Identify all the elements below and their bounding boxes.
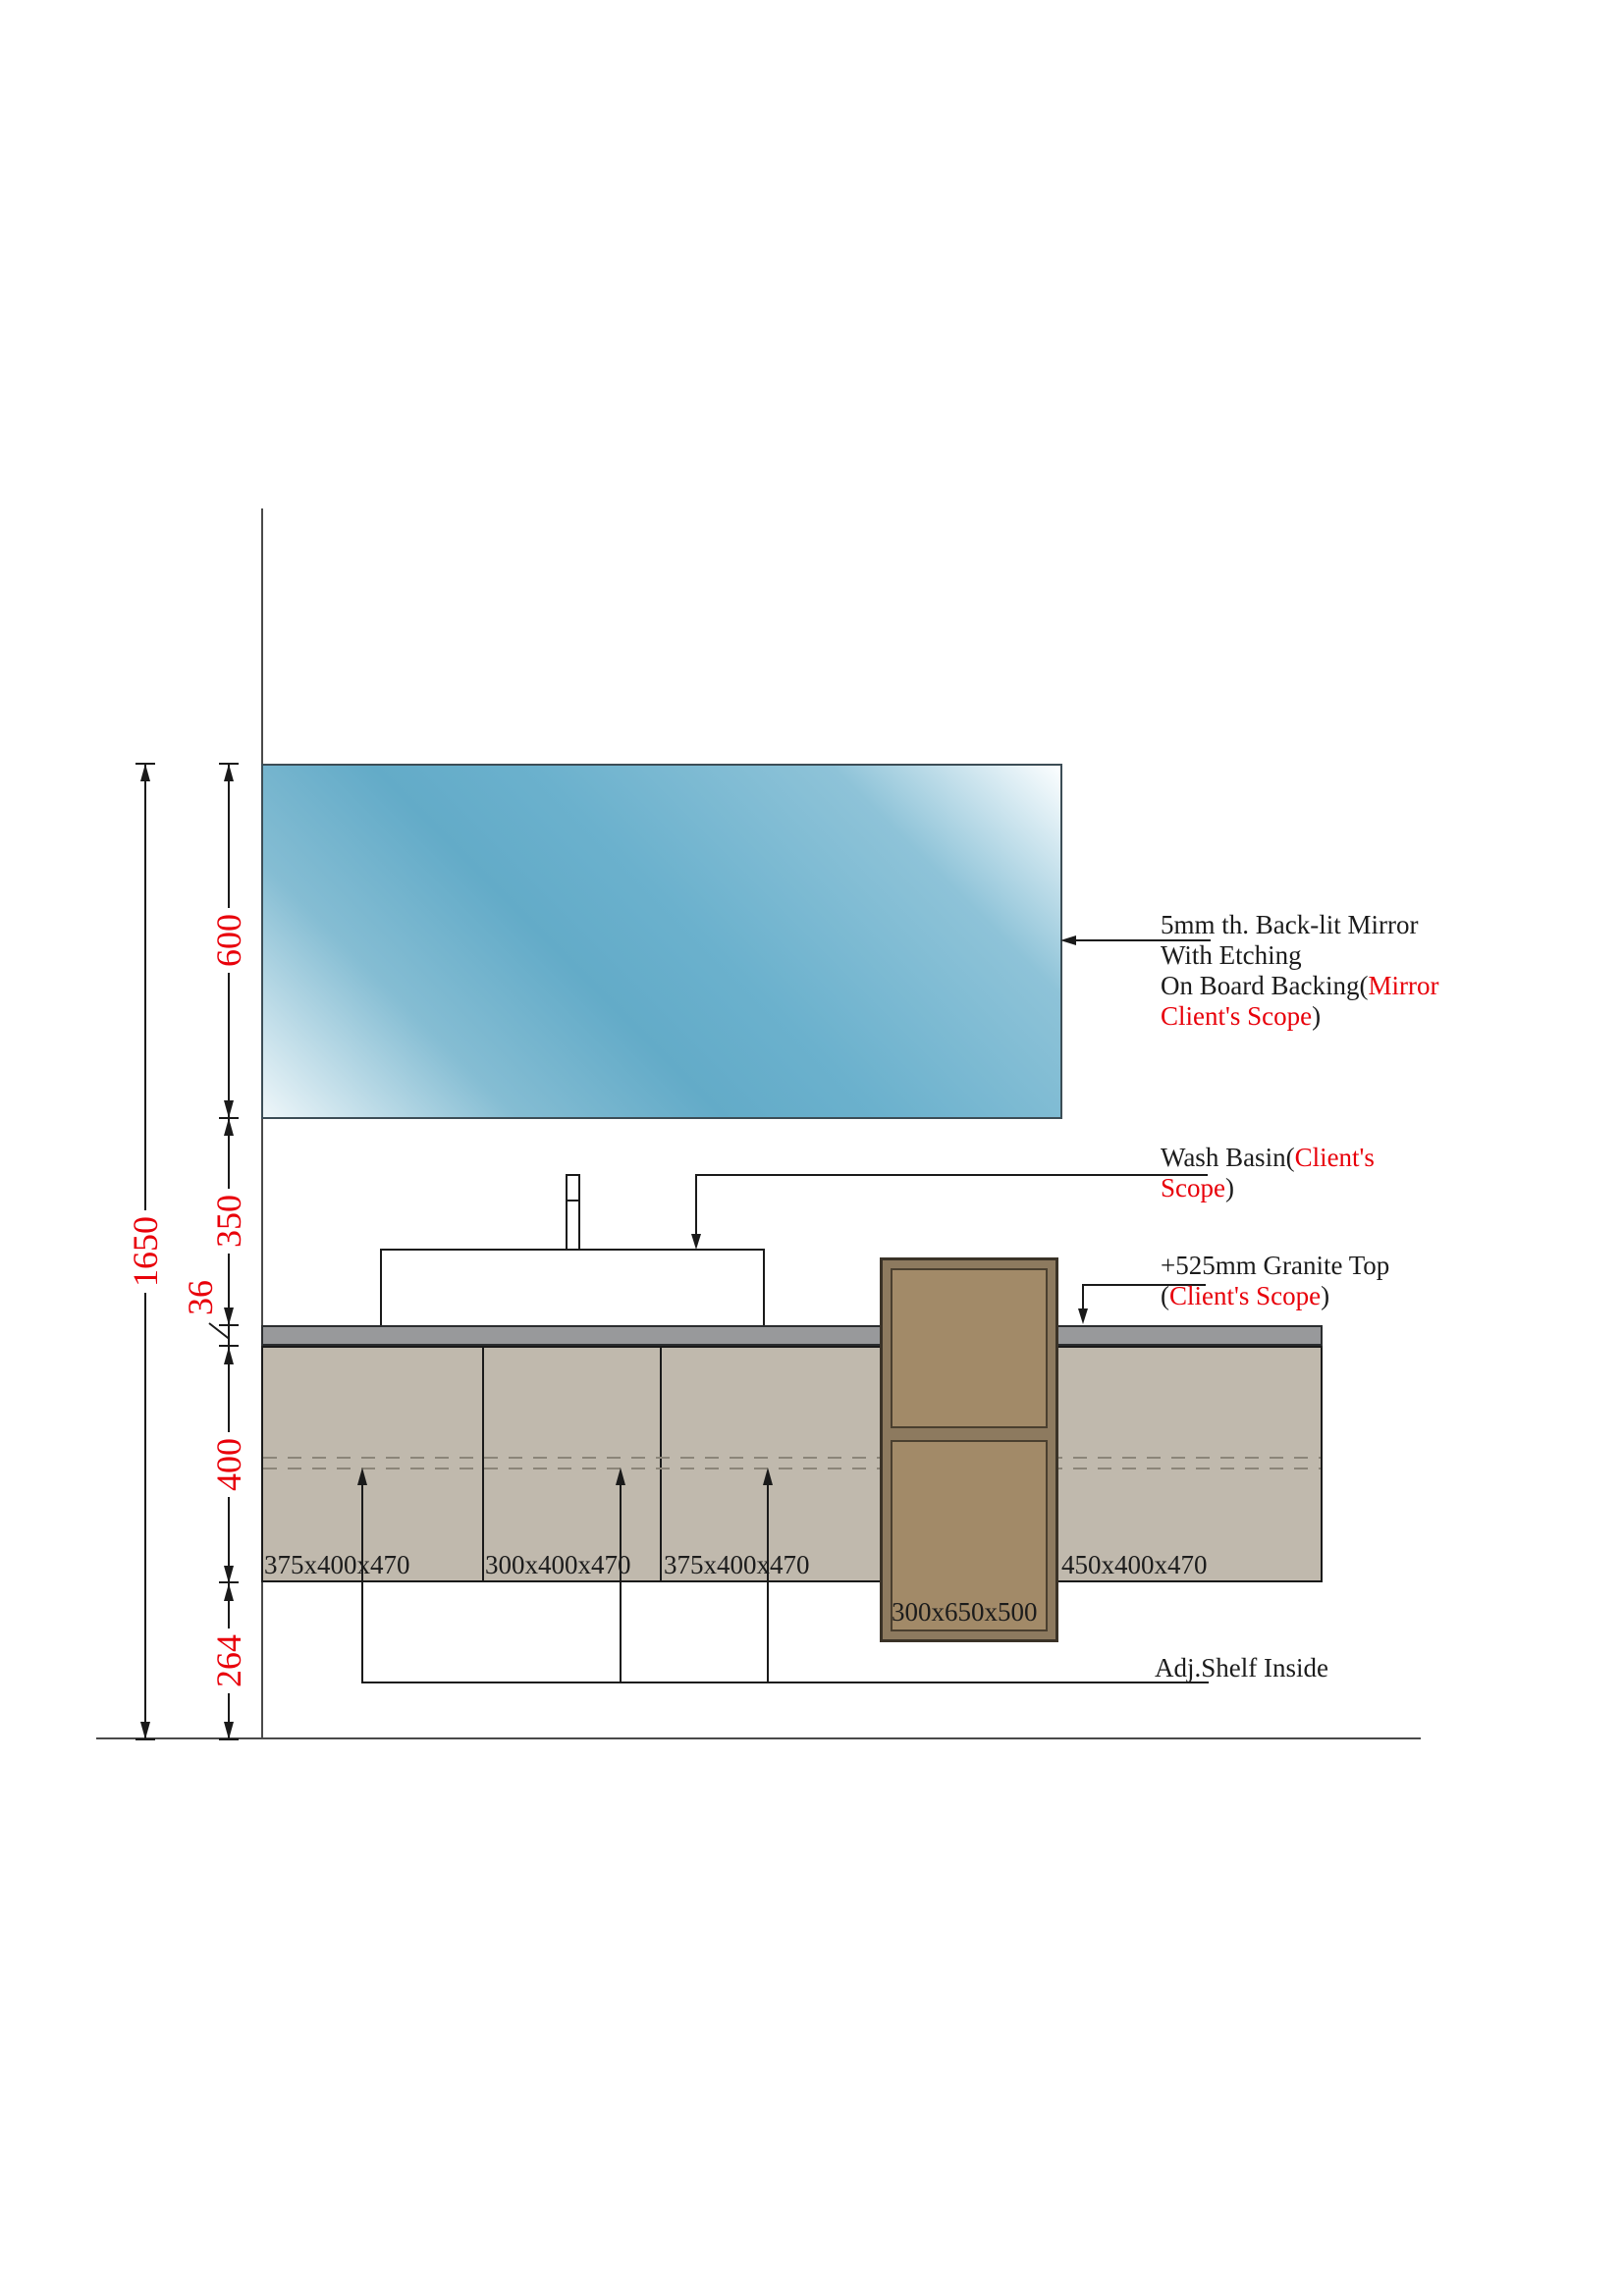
basin-leader-v	[695, 1174, 697, 1236]
shelf-leader-v1	[361, 1483, 363, 1682]
mirror-note-line3: On Board Backing(Mirror	[1161, 971, 1438, 1001]
arrowhead-down-icon	[224, 1566, 234, 1583]
granite-note-line2: (Client's Scope)	[1161, 1281, 1389, 1311]
door3-size-label: 375x400x470	[664, 1552, 810, 1578]
granite-note-line1: +525mm Granite Top	[1161, 1251, 1389, 1281]
arrowhead-up-icon	[224, 764, 234, 781]
mirror-note-line1: 5mm th. Back-lit Mirror	[1161, 910, 1438, 940]
wash-basin	[380, 1249, 765, 1327]
arrowhead-up-icon	[224, 1583, 234, 1601]
vanity-cabinet	[261, 1346, 1323, 1582]
mirror-note: 5mm th. Back-lit Mirror With Etching On …	[1161, 910, 1438, 1032]
granite-note: +525mm Granite Top (Client's Scope)	[1161, 1251, 1389, 1311]
vanity-elevation-drawing: 1650 600 350 36 400 264 375x400x470 300x…	[0, 0, 1623, 2296]
door-divider-2	[660, 1348, 662, 1580]
basin-leader-h	[695, 1174, 1208, 1176]
mirror-note-line2: With Etching	[1161, 940, 1438, 971]
arrowhead-down-icon	[140, 1722, 150, 1739]
dim-floor-clearance: 264	[211, 1629, 246, 1693]
arrowhead-up-icon	[224, 1347, 234, 1364]
shelf-leader-v2	[620, 1483, 622, 1682]
arrowhead-down-icon	[224, 1308, 234, 1325]
shelf-leader-v3	[767, 1483, 769, 1682]
dim-total-height: 1650	[128, 1210, 163, 1293]
tall-cabinet-size-label: 300x650x500	[892, 1599, 1038, 1626]
arrowhead-up-icon	[140, 764, 150, 781]
adjustable-shelf-dashed-line-1	[263, 1457, 1321, 1459]
shelf-leader-h	[361, 1682, 1209, 1683]
door4-size-label: 450x400x470	[1061, 1552, 1208, 1578]
dim-granite-thickness: 36	[183, 1278, 218, 1317]
arrowhead-up-icon	[224, 1118, 234, 1136]
basin-note: Wash Basin(Client's Scope)	[1161, 1143, 1375, 1203]
arrowhead-down-icon	[224, 1100, 234, 1118]
dim-cabinet-height: 400	[211, 1432, 246, 1497]
granite-leader-v	[1082, 1284, 1084, 1310]
door1-size-label: 375x400x470	[264, 1552, 410, 1578]
adjustable-shelf-dashed-line-2	[263, 1468, 1321, 1469]
basin-note-line2: Scope)	[1161, 1173, 1375, 1203]
basin-note-line1: Wash Basin(Client's	[1161, 1143, 1375, 1173]
arrowhead-down-icon	[1078, 1308, 1088, 1324]
tall-cabinet	[880, 1257, 1058, 1642]
mirror-note-line4: Client's Scope)	[1161, 1001, 1438, 1032]
tall-cabinet-upper-panel	[891, 1268, 1048, 1428]
shelf-note: Adj.Shelf Inside	[1155, 1653, 1328, 1683]
back-lit-mirror	[261, 764, 1062, 1119]
arrowhead-left-icon	[1060, 935, 1076, 945]
arrowhead-down-icon	[691, 1234, 701, 1250]
dim-mirror-height: 600	[211, 908, 246, 973]
granite-countertop	[261, 1325, 1323, 1346]
faucet-joint-line	[568, 1200, 578, 1201]
dim-basin-zone: 350	[211, 1189, 246, 1254]
door-divider-1	[482, 1348, 484, 1580]
floor-line	[96, 1737, 1421, 1739]
arrowhead-down-icon	[224, 1722, 234, 1739]
door2-size-label: 300x400x470	[485, 1552, 631, 1578]
faucet	[566, 1174, 580, 1251]
